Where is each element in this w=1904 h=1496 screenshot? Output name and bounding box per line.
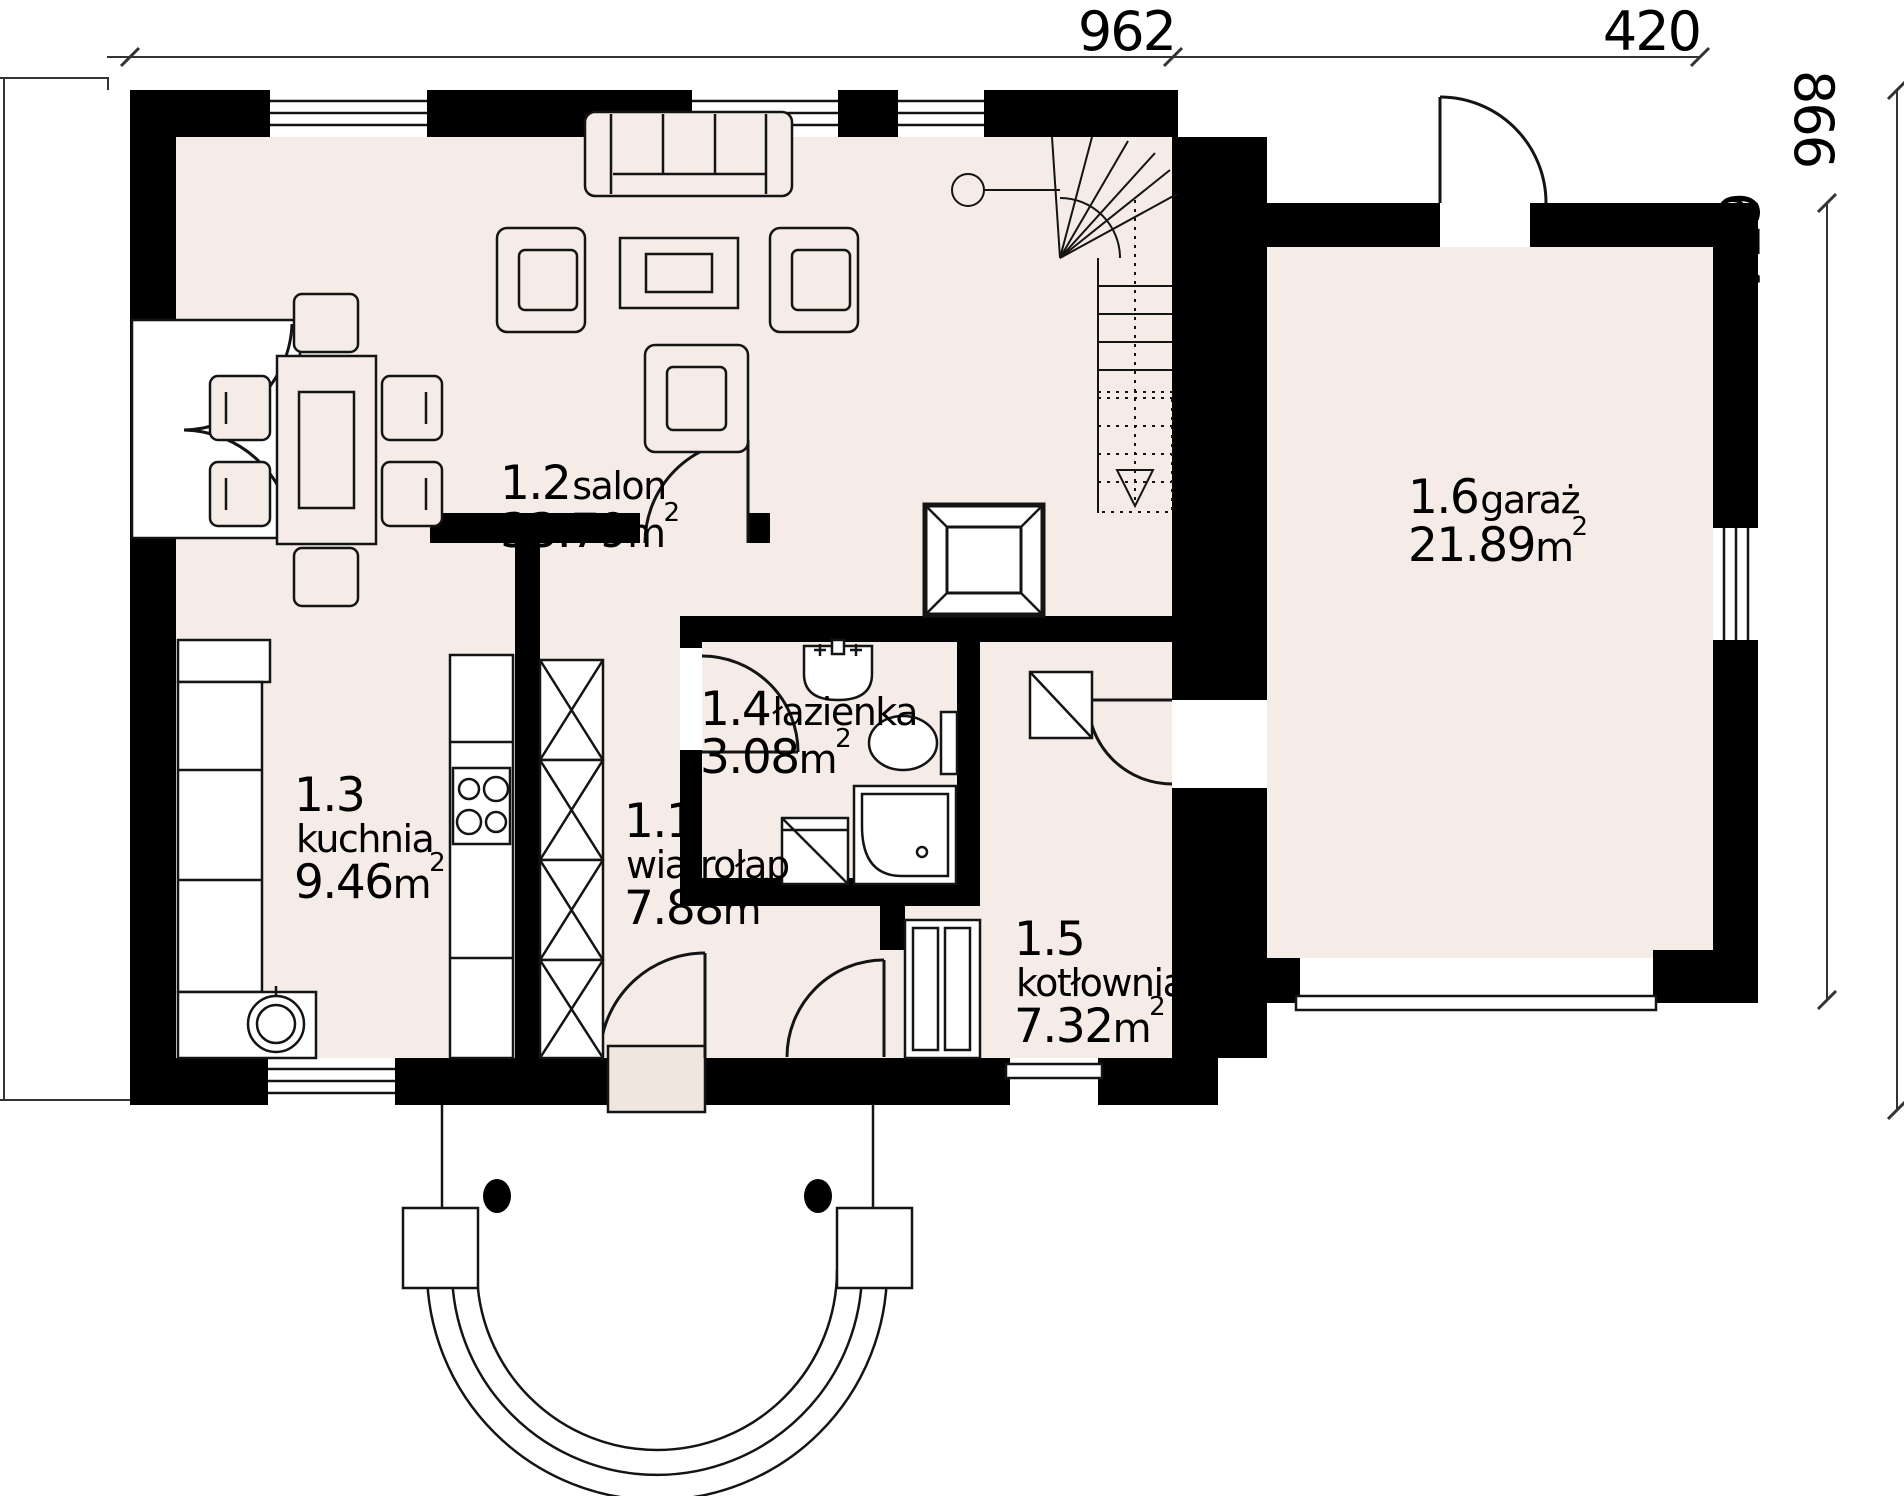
porch-step-arc [427,1270,887,1496]
porch-pier [837,1208,912,1288]
window-garage [1713,528,1758,640]
front-door-slab [608,1046,705,1112]
fireplace [925,505,1043,615]
dining-chair [382,376,442,440]
wall-left [130,90,176,1105]
armchair-right [770,228,858,332]
wall-garage-step [1653,950,1713,1003]
opening-bath-door [680,648,702,750]
porch-column [804,1179,832,1213]
floor-plan-page: 962 420 866 674 1.2salon 33.79m2 1.3 kuc… [0,0,1904,1496]
shower-icon [854,786,956,884]
kitchen-counter-right [450,655,513,1058]
dining-chair [294,548,358,606]
dining-chair [294,294,358,352]
wardrobe-cell [540,660,603,760]
dimension-right-garage: 674 [1707,192,1770,289]
wall-salon-divider-stub [748,513,770,543]
sofa [585,112,792,196]
window-top-left [270,90,427,137]
wall-bath-north [700,616,1178,642]
wall-house-garage [1172,137,1267,1058]
dining-chair [382,462,442,526]
garage-gate-panel [1296,996,1656,1010]
coffee-table [620,238,738,308]
opening-garage-boiler-door [1172,700,1267,788]
chimney-block [905,920,980,1058]
dining-table [277,356,376,544]
boiler-icon [1030,672,1092,738]
wall-boiler-west [880,906,905,950]
washing-machine-icon [782,818,848,884]
porch [403,1105,912,1496]
room-label-kotlownia: 1.5 kotłownia 7.32m2 [1014,916,1184,1051]
kitchen-counter-left [178,682,262,992]
wall-kitchen-partition [515,543,540,1058]
kitchen-counter-top [178,640,270,682]
porch-pier [403,1208,478,1288]
dining-chair [210,462,270,526]
dimension-right-total: 866 [1782,70,1845,167]
dimension-top-main: 962 [985,0,1175,63]
wardrobe-cell [540,760,603,860]
wardrobe-cell [540,960,603,1058]
opening-garage-side-door [1440,203,1530,247]
porch-step-arc [477,1270,837,1450]
porch-column [483,1179,511,1213]
door-garage-side [1440,97,1546,203]
window-top-right [898,90,984,137]
room-label-lazienka: 1.4łazienka 3.08m2 [700,686,917,782]
boiler-exterior-door-panel [1006,1064,1102,1078]
wardrobe-strip [540,660,603,1058]
room-label-wiatrolap: 1.1 wiatrołap 7.88m2 [624,798,789,933]
wall-bath-east [957,616,980,906]
wardrobe-cell [540,860,603,960]
dimension-top-garage: 420 [1510,0,1700,63]
armchair-bottom [645,345,748,452]
floor-plan-drawing [0,0,1904,1496]
room-label-garaz: 1.6garaż 21.89m2 [1408,474,1587,570]
window-kitchen [268,1058,395,1105]
room-label-kuchnia: 1.3 kuchnia 9.46m2 [294,772,444,907]
stove-icon [453,768,510,844]
porch-step-arc [452,1270,862,1475]
dim-ext-top-left [0,78,108,90]
room-label-salon: 1.2salon 33.79m2 [500,460,679,556]
dining-chair [210,376,270,440]
armchair-left [497,228,585,332]
